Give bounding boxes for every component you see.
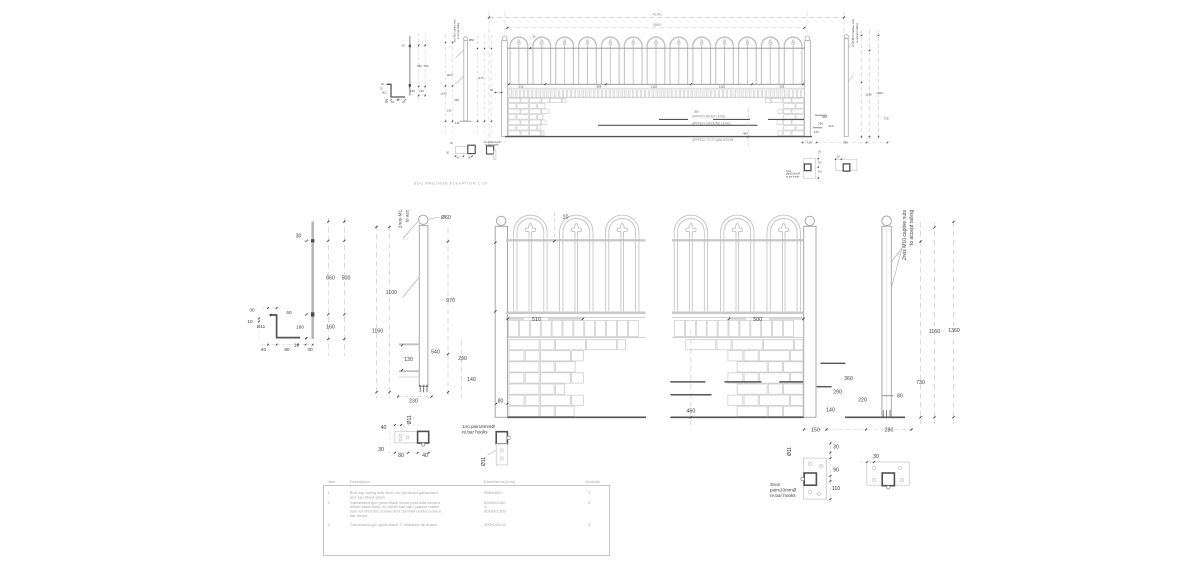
svg-text:150: 150 [807,141,812,145]
svg-text:2nos M10 captive nuts: 2nos M10 captive nuts [454,19,457,43]
svg-text:1100: 1100 [446,73,452,77]
svg-text:Description: Description [350,479,370,484]
svg-text:to accept railing: to accept railing [855,23,859,43]
svg-text:10: 10 [532,34,536,38]
svg-text:APPROX BEAM LEVEL: APPROX BEAM LEVEL [692,114,726,118]
svg-text:30: 30 [378,447,384,453]
svg-text:230: 230 [455,121,460,125]
svg-text:500: 500 [753,317,762,323]
svg-text:10: 10 [294,343,300,348]
svg-text:205: 205 [780,85,785,89]
svg-text:290: 290 [818,122,823,126]
svg-text:to accept railing: to accept railing [457,22,460,39]
svg-text:Ø11: Ø11 [407,415,413,424]
svg-text:Ø11: Ø11 [787,447,793,456]
svg-text:80: 80 [897,393,903,399]
svg-text:200: 200 [694,110,699,114]
svg-text:500: 500 [424,64,429,68]
svg-text:1no pair10mmØ: 1no pair10mmØ [462,424,495,429]
svg-text:510: 510 [532,317,541,323]
svg-text:660: 660 [417,64,422,68]
svg-text:220: 220 [828,124,833,128]
svg-text:Item: Item [328,479,336,484]
svg-text:30: 30 [249,308,255,313]
svg-text:140: 140 [467,377,476,383]
svg-text:540: 540 [431,349,440,355]
svg-text:140: 140 [813,130,818,134]
svg-text:1140: 1140 [440,92,446,96]
svg-text:1160: 1160 [372,328,383,334]
svg-text:3960: 3960 [653,22,663,27]
svg-text:80: 80 [284,347,290,352]
svg-text:3980x660: 3980x660 [484,490,502,495]
svg-text:Ø11: Ø11 [481,457,487,466]
svg-text:80x80x1160: 80x80x1160 [484,500,506,505]
svg-text:970: 970 [479,76,484,80]
svg-text:APPROX T/O FOUNDATION: APPROX T/O FOUNDATION [692,138,734,142]
svg-text:40: 40 [381,425,387,431]
svg-text:4140: 4140 [653,12,663,17]
svg-text:500: 500 [342,275,351,281]
svg-text:150: 150 [811,428,820,434]
svg-text:110: 110 [832,486,840,492]
svg-text:1140: 1140 [865,92,872,96]
svg-text:APPROX GROUND LEVEL: APPROX GROUND LEVEL [692,122,731,126]
svg-text:1100: 1100 [386,290,397,296]
svg-text:345: 345 [454,98,459,102]
svg-text:Ø60: Ø60 [469,38,475,42]
svg-text:290: 290 [833,389,842,395]
svg-text:220: 220 [858,397,867,403]
svg-text:10: 10 [247,319,253,324]
svg-text:pairs10mmØ: pairs10mmØ [770,487,797,492]
svg-text:360: 360 [844,376,853,382]
svg-text:230: 230 [409,399,418,405]
svg-text:1160: 1160 [929,329,940,335]
svg-text:730: 730 [916,380,925,386]
svg-text:80: 80 [398,453,404,459]
svg-text:130: 130 [447,109,452,113]
svg-text:40: 40 [422,453,428,459]
svg-text:300x160x30: 300x160x30 [484,522,507,527]
svg-text:460: 460 [686,409,695,415]
svg-text:10: 10 [563,214,569,220]
svg-text:30: 30 [873,454,879,460]
svg-text:Dimensions (mm): Dimensions (mm) [484,479,516,484]
svg-text:60: 60 [286,310,292,315]
svg-text:80: 80 [498,398,504,404]
svg-text:160: 160 [326,324,335,330]
svg-text:280: 280 [885,428,894,434]
svg-text:re.bar hooks: re.bar hooks [786,175,800,178]
svg-text:90: 90 [833,468,839,474]
svg-text:3.: 3. [328,522,331,527]
svg-text:bar hooks: bar hooks [350,513,368,518]
svg-text:290: 290 [458,356,467,362]
svg-text:2.: 2. [328,500,331,505]
svg-text:130: 130 [404,357,413,363]
svg-text:Ø11: Ø11 [257,324,266,329]
svg-text:280: 280 [843,141,848,145]
svg-text:re.bar hooks: re.bar hooks [462,430,488,435]
svg-text:to accept railing: to accept railing [909,210,915,245]
svg-text:30: 30 [401,43,405,47]
svg-text:3nos: 3nos [770,482,781,487]
svg-text:1360: 1360 [948,328,960,334]
svg-text:140: 140 [826,407,835,413]
svg-text:806: 806 [597,85,602,89]
svg-text:160: 160 [419,89,424,93]
svg-text:and ppc black gloss: and ppc black gloss [350,494,385,499]
svg-text:730: 730 [883,117,888,121]
svg-text:to acc: to acc [405,209,411,222]
svg-text:160: 160 [410,89,415,93]
svg-text:1.: 1. [328,490,331,495]
svg-text:660: 660 [326,275,335,281]
svg-text:30: 30 [307,347,313,352]
svg-text:110: 110 [818,170,823,174]
svg-text:1125: 1125 [719,85,725,89]
svg-text:30: 30 [296,233,302,239]
svg-text:1125: 1125 [651,85,657,89]
svg-text:40: 40 [261,347,267,352]
svg-text:SGC RAILINGS ELEVATION 1:1: SGC RAILINGS ELEVATION 1:10 [414,181,488,186]
svg-text:Quantity: Quantity [585,479,600,484]
svg-text:1360: 1360 [876,91,883,95]
svg-text:460: 460 [743,131,748,135]
svg-text:Ø11: Ø11 [382,90,387,94]
svg-text:80x80x1360: 80x80x1360 [484,509,507,514]
svg-text:re.bar hooks: re.bar hooks [770,493,796,498]
svg-text:160: 160 [296,324,304,329]
svg-text:210: 210 [519,85,524,89]
svg-text:30: 30 [833,445,839,451]
svg-text:970: 970 [446,298,455,304]
svg-text:Galvanised ppc gloss black 'Z': Galvanised ppc gloss black 'Z' brackets … [350,522,437,527]
svg-text:Ø60: Ø60 [441,215,451,221]
svg-text:2nos M1: 2nos M1 [398,209,404,228]
svg-text:2nos M10 captive nuts: 2nos M10 captive nuts [902,210,908,261]
